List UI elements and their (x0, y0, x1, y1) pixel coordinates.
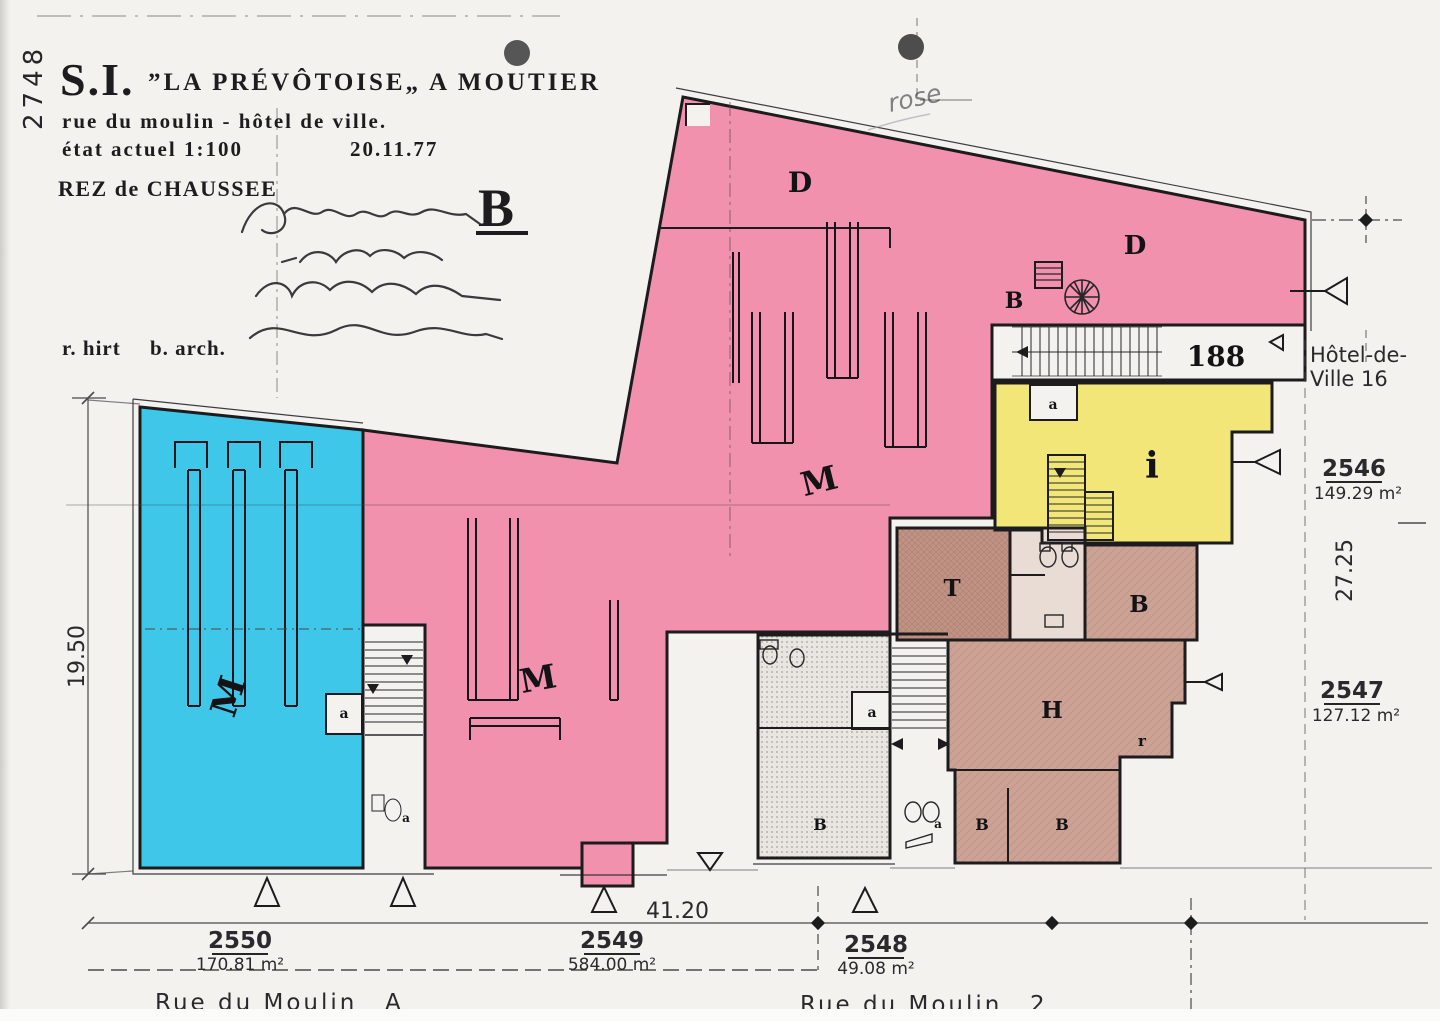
room-label-d-1: D (1124, 231, 1147, 261)
parcel-number: 2546 (1322, 456, 1386, 482)
parcel-area: 170.81 m² (196, 955, 284, 975)
date-label: 20.11.77 (350, 137, 438, 161)
scanned-floor-plan-sheet: DDBMMMiTBHrBBB188aaaaa 19.50 27.25 41.20… (0, 0, 1440, 1021)
room-label-r-10: r (1138, 732, 1147, 750)
staircase-left-shaft (365, 642, 423, 821)
parcel-2547: 2547 127.12 m² (1312, 678, 1400, 726)
room-label-a-19: a (934, 817, 942, 831)
parcel-number: 2547 (1320, 678, 1384, 704)
corner-notch (686, 104, 710, 126)
street-label-a: Rue du Moulin A (155, 990, 401, 1016)
region-pink-vestibule (582, 843, 633, 886)
registry-number: 2748 (19, 44, 49, 130)
handwritten-note: rose (885, 78, 944, 118)
colored-regions (140, 97, 1305, 886)
hole-punch-right (898, 34, 924, 60)
parcel-number: 2549 (580, 928, 644, 954)
region-cyan-storage (140, 407, 363, 868)
region-bathroom-strip (1010, 528, 1085, 640)
staircase-top-corridor (1012, 327, 1162, 376)
company-prefix: S.I. (60, 54, 134, 105)
parcel-area: 49.08 m² (837, 959, 914, 979)
parcel-2546: 2546 149.29 m² (1314, 456, 1402, 504)
room-label-b-11: B (813, 815, 827, 834)
room-label-m-5: M (517, 656, 560, 701)
dim-right-height: 27.25 (1333, 539, 1358, 602)
floor-label: REZ de CHAUSSEE (58, 176, 277, 201)
signature-3 (256, 282, 500, 300)
room-label-h-9: H (1041, 697, 1063, 724)
staircase-middle (892, 648, 946, 728)
neighbor-label-line2: Ville 16 (1310, 367, 1388, 391)
room-label-b-2: B (1005, 288, 1024, 314)
parcel-area: 584.00 m² (568, 955, 656, 975)
street-number: A (385, 990, 401, 1016)
room-label-a-16: a (1048, 397, 1057, 413)
signature-4 (250, 325, 502, 339)
room-label-a-17: a (867, 705, 876, 721)
spiral-staircase (1065, 280, 1099, 314)
architect-name: r. hirt (62, 336, 121, 360)
street-label-2: Rue du Moulin 2 (800, 992, 1045, 1018)
room-label-a-18: a (402, 811, 410, 825)
street-name: Rue du Moulin (155, 990, 357, 1016)
room-label-188-14: 188 (1187, 340, 1245, 373)
room-label-i-6: i (1145, 445, 1159, 487)
address-line: rue du moulin - hôtel de ville. (62, 109, 387, 133)
room-label-b-12: B (975, 815, 989, 834)
room-label-b-8: B (1129, 591, 1148, 618)
architect-title: b. arch. (150, 336, 226, 360)
dim-left-height: 19.50 (65, 625, 90, 688)
hole-punches (504, 34, 924, 66)
company-name: ”LA PRÉVÔTOISE„ A MOUTIER (148, 67, 601, 96)
dim-bottom-width: 41.20 (646, 899, 709, 924)
room-label-d-0: D (788, 166, 812, 199)
handwritten-annotations (242, 203, 502, 339)
pencil-note: rose (868, 78, 944, 130)
room-label-a-15: a (339, 706, 348, 722)
room-label-b-13: B (1055, 815, 1069, 834)
floor-plan-drawing: DDBMMMiTBHrBBB188aaaaa 19.50 27.25 41.20… (0, 0, 1440, 1021)
parcel-area: 149.29 m² (1314, 484, 1402, 504)
street-name: Rue du Moulin (800, 992, 1002, 1018)
street-number: 2 (1030, 992, 1045, 1018)
signature-1 (242, 203, 480, 233)
room-label-t-7: T (943, 575, 960, 602)
state-label: état actuel 1:100 (62, 137, 243, 161)
sheet-letter: B (478, 178, 514, 238)
hole-punch-left (504, 40, 530, 66)
signature-2 (282, 250, 442, 262)
parcel-area: 127.12 m² (1312, 706, 1400, 726)
pencil-stroke (868, 114, 930, 130)
parcel-2550: 2550 170.81 m² (196, 928, 284, 975)
title-block: 2748 S.I. ”LA PRÉVÔTOISE„ A MOUTIER rue … (19, 44, 601, 360)
parcel-2548: 2548 49.08 m² (837, 932, 914, 979)
parcel-number: 2548 (844, 932, 908, 958)
parcel-2549: 2549 584.00 m² (568, 928, 656, 975)
neighbor-label-line1: Hôtel-de- (1310, 343, 1407, 367)
parcel-number: 2550 (208, 928, 272, 954)
